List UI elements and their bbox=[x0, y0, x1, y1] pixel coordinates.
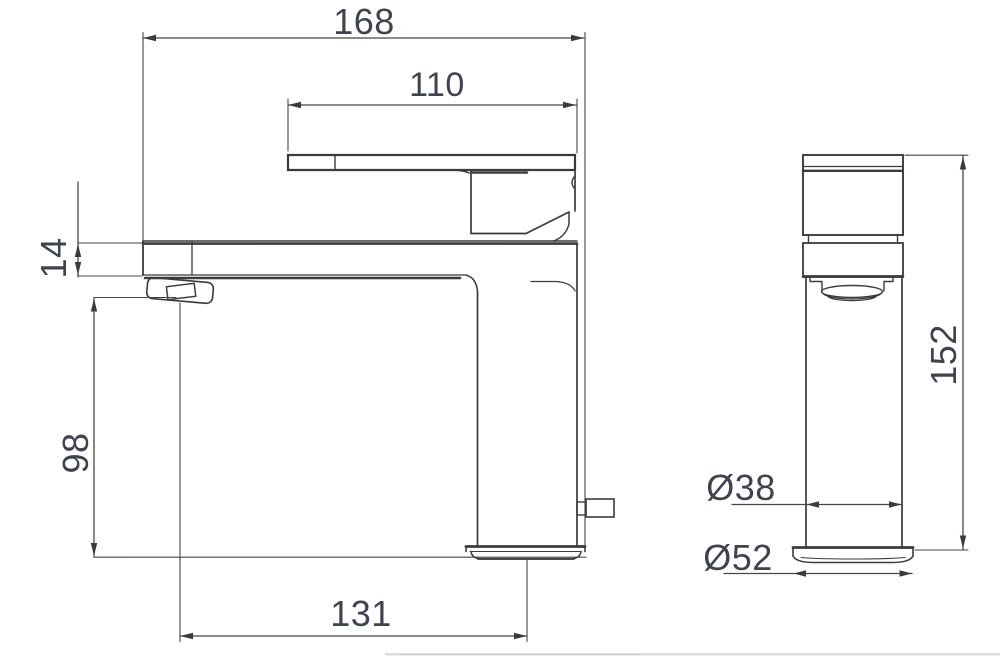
dimension-overall-height: 152 bbox=[905, 155, 968, 550]
front-view bbox=[793, 155, 913, 563]
arrowhead-icon bbox=[807, 501, 820, 507]
arrowhead-icon bbox=[91, 299, 97, 312]
dimension-spout-height: 98 bbox=[55, 298, 586, 558]
dimension-body-diameter: Ø38 bbox=[706, 467, 902, 508]
arrowhead-icon bbox=[900, 570, 913, 576]
column-edges bbox=[806, 277, 902, 547]
dimension-spout-reach: 131 bbox=[180, 303, 527, 642]
arrowhead-icon bbox=[794, 570, 807, 576]
dim-label: 110 bbox=[409, 66, 465, 104]
dimension-spout-thickness: 14 bbox=[33, 182, 142, 279]
scan-artifact-line bbox=[400, 654, 640, 655]
arrowhead-icon bbox=[960, 157, 966, 170]
arrowhead-icon bbox=[91, 543, 97, 556]
body-chamfer bbox=[526, 212, 569, 234]
dimension-handle-length: 110 bbox=[288, 66, 577, 153]
aerator-outer bbox=[146, 277, 214, 304]
dim-label: Ø52 bbox=[703, 537, 773, 578]
faucet-dimension-drawing: 168 110 14 98 bbox=[0, 0, 1000, 658]
arrowhead-icon bbox=[75, 262, 81, 275]
dim-label: 14 bbox=[33, 237, 74, 278]
arrowhead-icon bbox=[143, 35, 156, 41]
dim-label: 152 bbox=[923, 324, 964, 386]
arrowhead-icon bbox=[889, 501, 902, 507]
arrowhead-icon bbox=[288, 102, 301, 108]
aerator-ring bbox=[822, 286, 883, 298]
arrowhead-icon bbox=[563, 102, 576, 108]
arrowhead-icon bbox=[180, 633, 193, 639]
dim-label: 98 bbox=[55, 432, 96, 473]
neck-joint bbox=[809, 235, 898, 243]
side-view bbox=[143, 155, 614, 559]
technical-drawing-canvas: 168 110 14 98 bbox=[0, 0, 1000, 658]
arrowhead-icon bbox=[960, 536, 966, 549]
dim-label: 131 bbox=[330, 593, 392, 634]
drain-rod-knob bbox=[586, 499, 614, 517]
dimension-overall-length: 168 bbox=[143, 1, 585, 546]
aerator bbox=[146, 277, 214, 304]
base-inner-line bbox=[801, 558, 905, 560]
arrowhead-icon bbox=[514, 633, 527, 639]
lever-outline bbox=[288, 155, 575, 170]
arrowhead-icon bbox=[571, 35, 584, 41]
dim-label: Ø38 bbox=[706, 467, 776, 508]
dim-label: 168 bbox=[333, 1, 395, 42]
arrowhead-icon bbox=[75, 244, 81, 257]
spout-body-band bbox=[803, 243, 903, 277]
aerator-housing bbox=[810, 277, 893, 301]
spout-shoulder bbox=[467, 276, 478, 292]
spout-back-detail bbox=[531, 282, 575, 292]
